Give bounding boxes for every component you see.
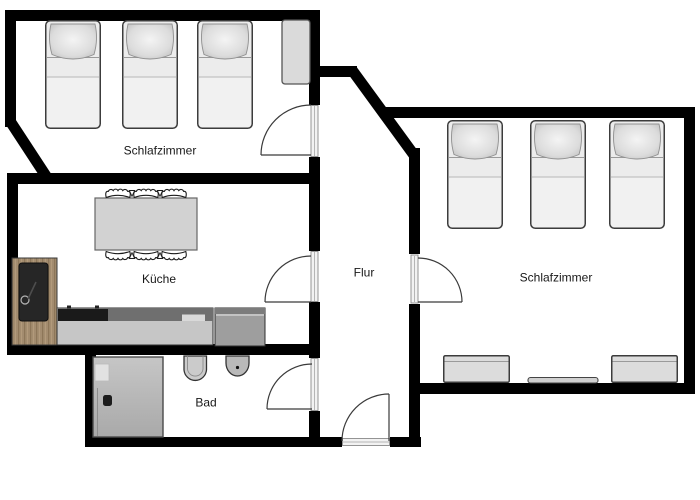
bed-icon <box>46 21 101 129</box>
counter-tick <box>95 306 99 309</box>
wall-segment <box>309 302 320 358</box>
chest-icon <box>612 356 678 383</box>
counter-notch <box>182 315 205 322</box>
wall-segment <box>409 148 420 254</box>
sink-basin <box>19 263 48 321</box>
room-label-kitchen: Küche <box>142 272 176 286</box>
shower-icon <box>93 357 163 437</box>
wall-segment <box>85 437 342 447</box>
wall-segment <box>7 344 320 355</box>
dining-table-icon <box>95 198 197 250</box>
wall-segment <box>412 383 695 394</box>
bed-icon <box>531 121 586 229</box>
cooktop-icon <box>58 309 108 321</box>
wall-segment <box>684 107 695 394</box>
bed-icon <box>448 121 503 229</box>
toilet-flush-dot <box>236 366 239 369</box>
wall-segment <box>7 173 320 184</box>
wall-segment <box>5 10 16 127</box>
wall-segment <box>409 304 420 447</box>
counter-tick <box>67 306 71 309</box>
floor-plan-drawing: Schlafzimmer Küche Flur Bad Schlafzimmer <box>0 0 700 500</box>
wood-cabinet-icon <box>12 258 57 345</box>
shower-tray-corner <box>95 364 109 381</box>
room-label-bedroom-left: Schlafzimmer <box>124 144 197 158</box>
counter-unit-icon <box>215 308 265 346</box>
bed-icon <box>610 121 665 229</box>
wall-segment <box>309 411 320 447</box>
bed-icon <box>123 21 178 129</box>
bidet-icon <box>184 356 207 380</box>
room-label-bathroom: Bad <box>195 396 216 410</box>
wall-segment <box>309 157 320 251</box>
floor-plan-canvas: Schlafzimmer Küche Flur Bad Schlafzimmer <box>0 0 700 500</box>
wall-segment <box>380 107 695 118</box>
countertop-icon <box>57 306 213 346</box>
room-label-hallway: Flur <box>354 266 375 280</box>
chest-icon <box>444 356 510 383</box>
shower-handle <box>103 395 112 406</box>
room-label-bedroom-right: Schlafzimmer <box>520 271 593 285</box>
bed-icon <box>198 21 253 129</box>
wall-segment <box>5 10 320 21</box>
wardrobe-icon <box>282 20 310 84</box>
toilet-icon <box>226 356 249 376</box>
wall-shelf-icon <box>528 378 598 384</box>
